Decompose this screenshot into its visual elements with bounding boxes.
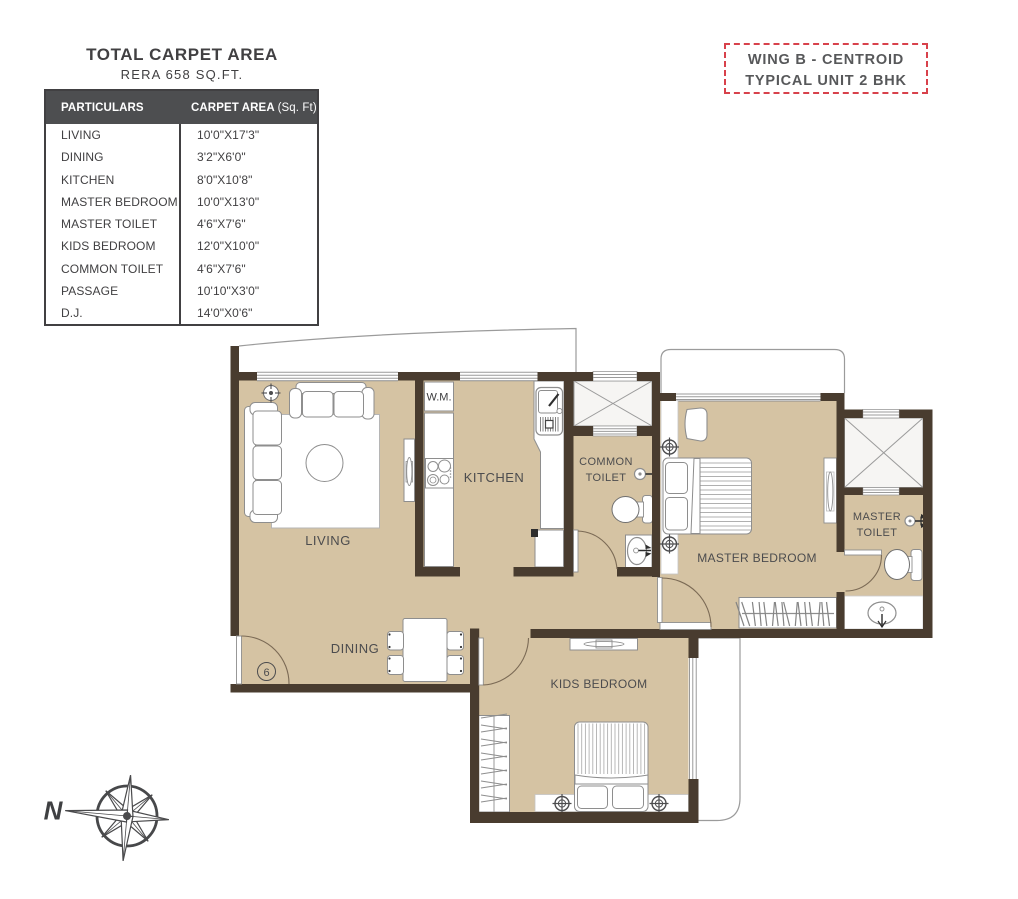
svg-text:KIDS BEDROOM: KIDS BEDROOM [551, 677, 648, 691]
svg-text:N: N [44, 796, 64, 826]
svg-text:W.M.: W.M. [426, 392, 451, 404]
svg-text:MASTER BEDROOM: MASTER BEDROOM [697, 551, 817, 565]
svg-text:LIVING: LIVING [305, 533, 351, 548]
svg-text:COMMON: COMMON [579, 456, 633, 468]
svg-text:TOILET: TOILET [857, 527, 898, 539]
svg-text:MASTER: MASTER [853, 511, 901, 523]
svg-text:6: 6 [263, 667, 269, 679]
svg-text:KITCHEN: KITCHEN [464, 470, 525, 485]
svg-text:DINING: DINING [331, 641, 380, 656]
svg-text:TOILET: TOILET [586, 472, 627, 484]
